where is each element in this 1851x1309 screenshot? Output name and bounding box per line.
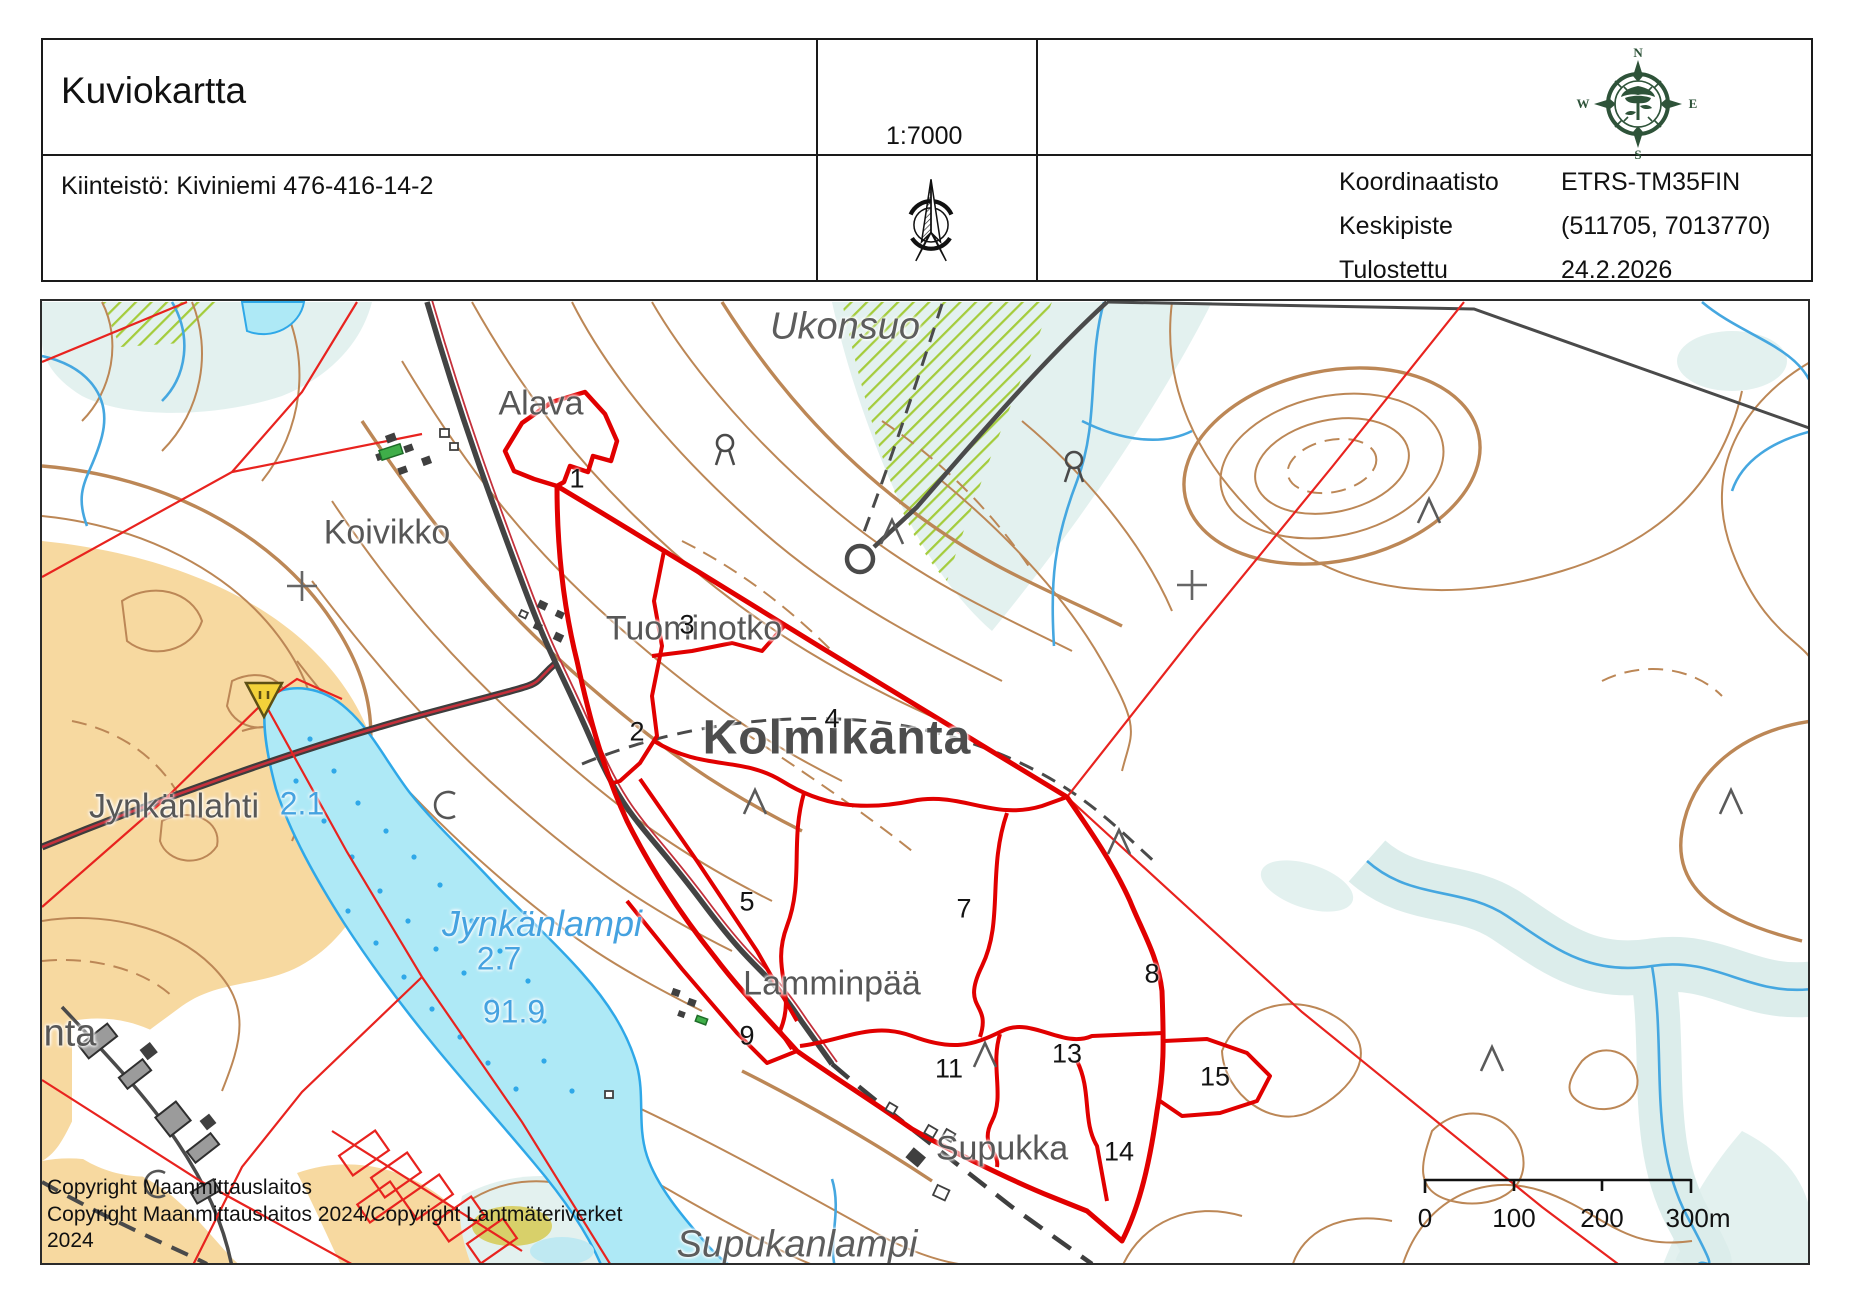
place-label: Jynkänlahti [89,788,259,827]
place-label: nta [44,1013,97,1056]
lake-jynkanlampi [242,302,732,1265]
page-title: Kuviokartta [61,70,246,112]
scale-bar-label: 100 [1492,1203,1535,1234]
compartment-number: 15 [1200,1062,1230,1093]
page: Kuviokartta Kiinteistö: Kiviniemi 476-41… [0,0,1851,1309]
place-label: Supukanlampi [677,1224,918,1266]
compartment-number: 8 [1144,959,1159,990]
stand-subdivision-lines [613,551,1270,1201]
map-info-list: KoordinaatistoETRS-TM35FINKeskipiste(511… [1339,158,1809,290]
place-label: 2.1 [280,786,324,823]
map-info-label: Tulostettu [1339,256,1448,285]
map-info-row: Tulostettu24.2.2026 [1339,246,1809,290]
map-info-label: Keskipiste [1339,212,1453,241]
place-label: Ukonsuo [770,306,920,349]
compartment-number: 3 [679,610,694,641]
compartment-number: 7 [956,894,971,925]
map-info-label: Koordinaatisto [1339,168,1499,197]
place-label: Jynkänlampi [442,903,642,945]
cross-symbols [287,570,1207,601]
place-label: 2.7 [477,941,521,978]
compass-e-label: E [1689,96,1698,111]
copyright-notice: Copyright MaanmittauslaitosCopyright Maa… [47,1175,622,1255]
property-id: Kiinteistö: Kiviniemi 476-416-14-2 [61,172,433,201]
copyright-line: Copyright Maanmittauslaitos [47,1175,622,1202]
header-row-divider [43,154,1811,156]
place-label: Supukka [936,1130,1068,1169]
compass-n-label: N [1633,48,1643,60]
copyright-line: 2024 [47,1228,622,1255]
compartment-number: 13 [1052,1039,1082,1070]
header-col-divider-1 [816,40,818,280]
place-label: Alava [498,385,583,424]
compartment-number: 2 [629,717,644,748]
compartment-number: 9 [739,1021,754,1052]
map-scale-value: 1:7000 [886,122,962,151]
compartment-number: 4 [824,704,839,735]
topographic-map-art [42,301,1810,1265]
copyright-line: Copyright Maanmittauslaitos 2024/Copyrig… [47,1202,622,1229]
place-label: 91.9 [483,994,545,1031]
place-label: Lamminpää [743,965,921,1004]
scale-bar-label: 300m [1665,1203,1730,1234]
scale-bar-label: 0 [1418,1203,1432,1234]
north-arrow-icon [876,168,986,283]
scale-bar-label: 200 [1580,1203,1623,1234]
header-col-divider-2 [1036,40,1038,280]
map-info-row: Keskipiste(511705, 7013770) [1339,202,1809,246]
compass-rose-icon: N S W E [1558,48,1718,165]
map-info-value: (511705, 7013770) [1561,212,1770,241]
compartment-number: 14 [1104,1137,1134,1168]
map-canvas[interactable]: UkonsuoAlavaKoivikkoTuominotkoKolmikanta… [40,299,1810,1265]
compartment-number: 11 [935,1054,963,1085]
compartment-number: 1 [569,464,584,495]
map-info-value: ETRS-TM35FIN [1561,168,1740,197]
place-label: Koivikko [324,514,451,553]
header-table: Kuviokartta Kiinteistö: Kiviniemi 476-41… [41,38,1813,282]
map-info-row: KoordinaatistoETRS-TM35FIN [1339,158,1809,202]
map-info-value: 24.2.2026 [1561,256,1672,285]
compartment-number: 5 [739,887,754,918]
compass-w-label: W [1577,96,1590,111]
